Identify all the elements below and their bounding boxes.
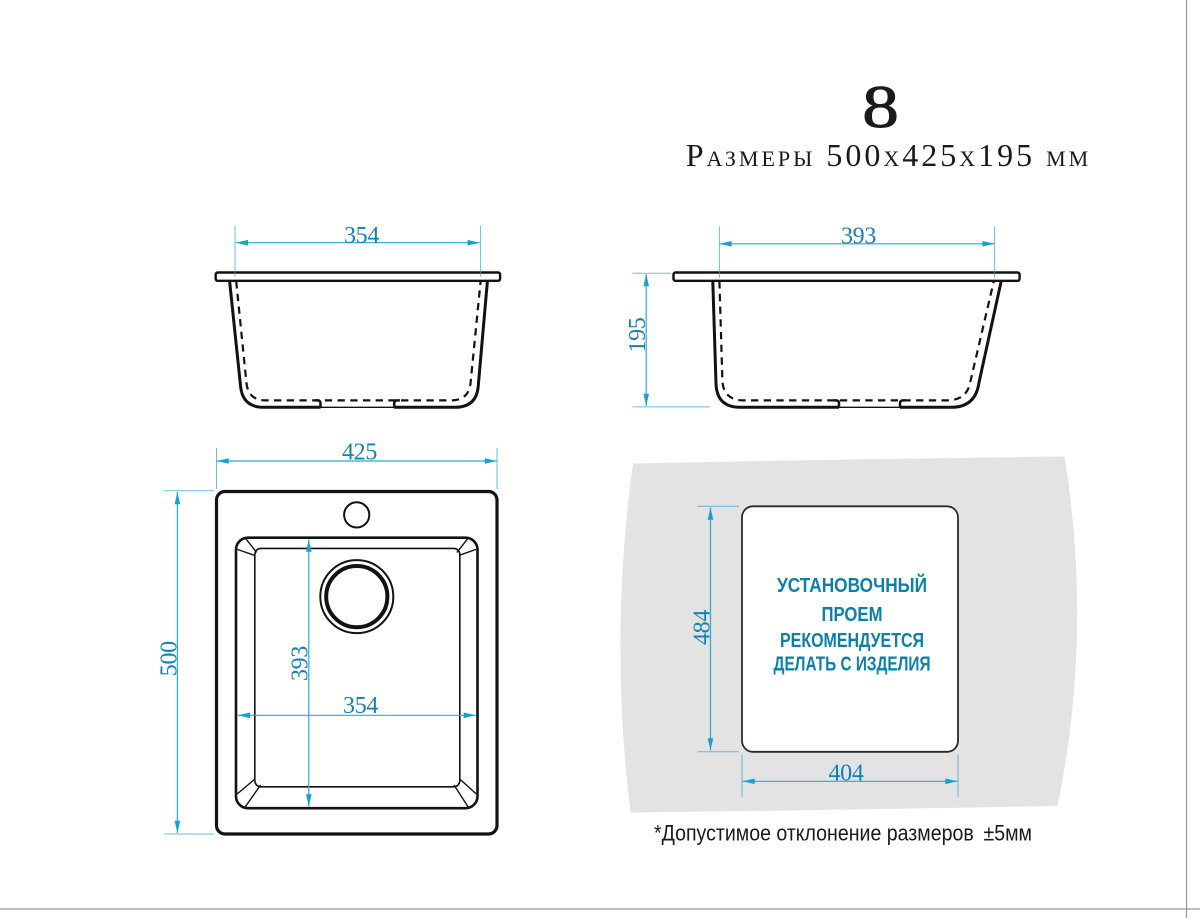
svg-text:354: 354 [343, 693, 378, 719]
svg-text:354: 354 [344, 223, 379, 249]
svg-text:ПРОЕМ: ПРОЕМ [822, 604, 883, 626]
svg-text:ДЕЛАТЬ С ИЗДЕЛИЯ: ДЕЛАТЬ С ИЗДЕЛИЯ [774, 654, 931, 676]
svg-text:195: 195 [625, 317, 651, 352]
svg-text:*Допустимое отклонение размеро: *Допустимое отклонение размеров ±5мм [654, 821, 1032, 846]
svg-text:393: 393 [841, 223, 876, 249]
svg-text:РЕКОМЕНДУЕТСЯ: РЕКОМЕНДУЕТСЯ [780, 630, 924, 652]
svg-text:500: 500 [156, 641, 182, 676]
svg-text:404: 404 [828, 760, 863, 786]
svg-text:УСТАНОВОЧНЫЙ: УСТАНОВОЧНЫЙ [777, 573, 927, 597]
svg-text:Размеры 500х425х195 мм: Размеры 500х425х195 мм [686, 137, 1091, 173]
svg-text:8: 8 [862, 74, 899, 140]
svg-text:484: 484 [689, 610, 715, 645]
svg-text:425: 425 [342, 440, 377, 466]
svg-text:393: 393 [287, 646, 313, 681]
